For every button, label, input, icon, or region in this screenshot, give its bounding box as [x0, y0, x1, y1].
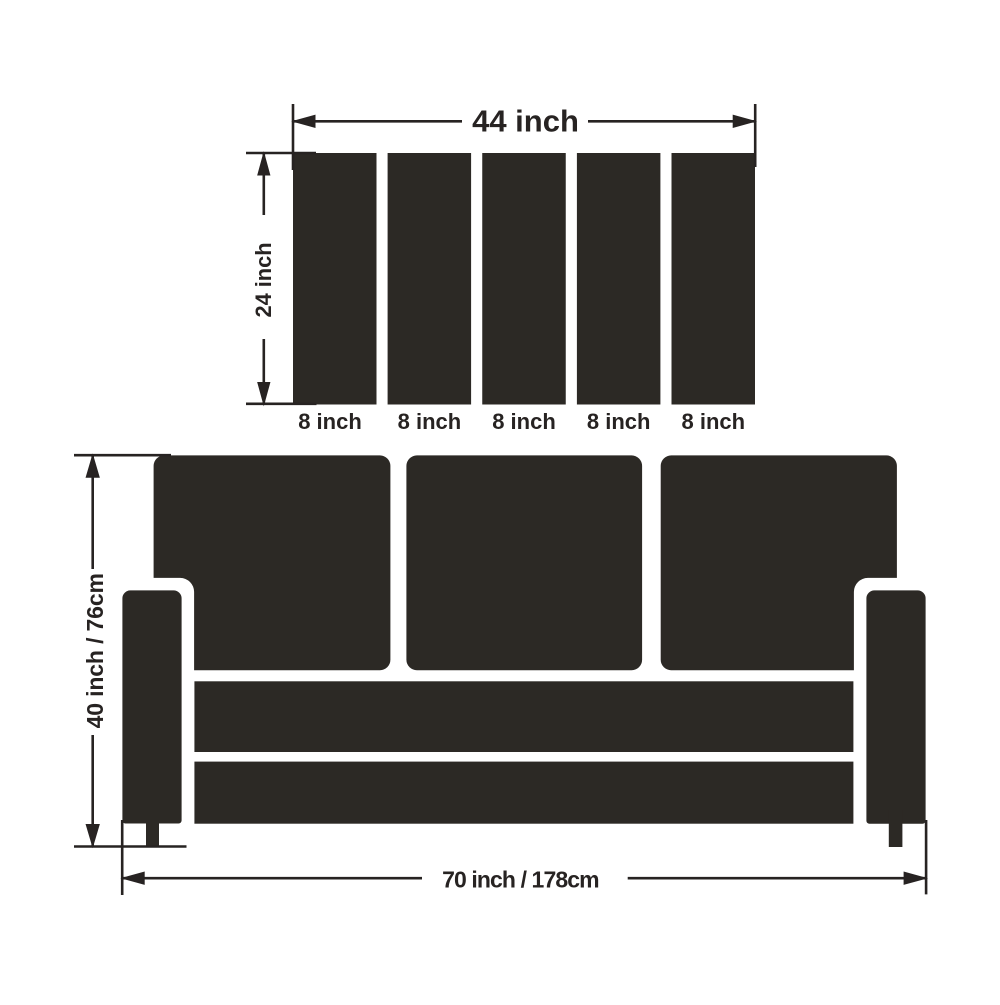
svg-text:40 inch / 76cm: 40 inch / 76cm	[82, 573, 108, 728]
svg-text:44 inch: 44 inch	[472, 104, 579, 139]
svg-text:24 inch: 24 inch	[251, 242, 276, 317]
svg-text:8 inch: 8 inch	[492, 409, 556, 434]
svg-text:70 inch / 178cm: 70 inch / 178cm	[442, 866, 599, 892]
svg-text:8 inch: 8 inch	[587, 409, 651, 434]
svg-text:8 inch: 8 inch	[298, 409, 362, 434]
svg-text:8 inch: 8 inch	[398, 409, 462, 434]
svg-text:8 inch: 8 inch	[682, 409, 746, 434]
